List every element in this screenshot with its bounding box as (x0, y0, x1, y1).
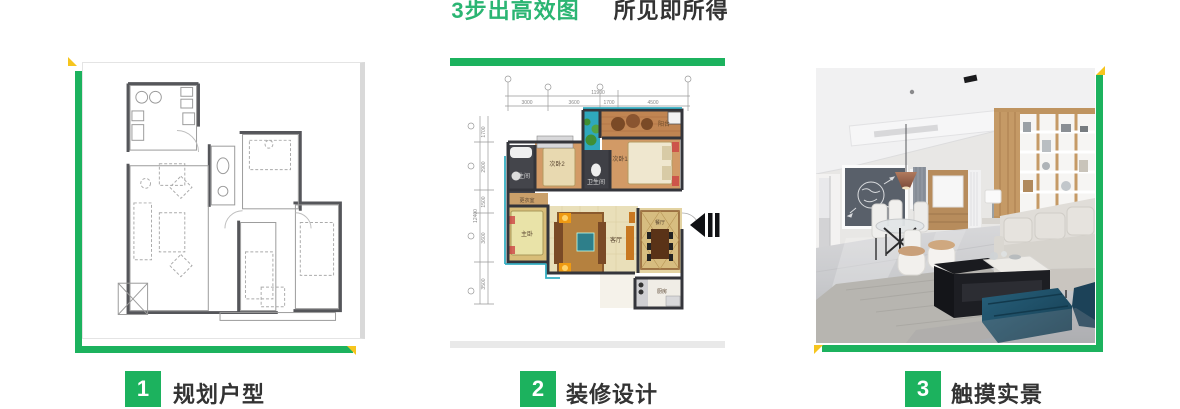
step-label-3: 触摸实景 (951, 377, 1043, 409)
panel2-green-frame-top (450, 58, 725, 66)
svg-text:次卧2: 次卧2 (549, 160, 565, 168)
step-label-2: 装修设计 (566, 377, 658, 409)
svg-text:更衣室: 更衣室 (519, 197, 534, 204)
colored-floorplan-image: 11900 3000 3600 1700 4500 12400 1700 290… (450, 66, 725, 341)
colored-floorplan-card: 11900 3000 3600 1700 4500 12400 1700 290… (450, 66, 725, 341)
svg-text:2900: 2900 (481, 161, 487, 172)
svg-text:厨房: 厨房 (657, 288, 667, 295)
step-number-3: 3 (917, 376, 929, 402)
step-number-2: 2 (532, 376, 544, 402)
page-title: 3步出高效图所见即所得 (0, 0, 1180, 25)
panel1-yellow-corner-top-left (68, 57, 77, 66)
step-label-1: 规划户型 (173, 377, 265, 409)
svg-text:3600: 3600 (568, 100, 579, 106)
panel3-yellow-corner-top-right (1096, 66, 1105, 75)
svg-text:3500: 3500 (481, 278, 487, 289)
svg-text:12400: 12400 (473, 209, 479, 223)
panel1-green-frame-left (75, 71, 82, 353)
svg-text:客厅: 客厅 (610, 236, 622, 244)
page-title-highlight: 3步出高效图 (451, 0, 579, 23)
svg-text:主卧: 主卧 (521, 230, 533, 238)
step-number-1: 1 (137, 376, 149, 402)
svg-text:1500: 1500 (481, 196, 487, 207)
rendered-room-image (816, 68, 1095, 343)
panel3-green-frame-bottom (822, 345, 1103, 352)
sketch-floorplan-image (83, 63, 360, 338)
panel3-green-frame-right (1096, 75, 1103, 352)
step-badge-3: 3 (905, 371, 941, 407)
page-title-rest: 所见即所得 (614, 0, 729, 23)
svg-text:餐厅: 餐厅 (655, 219, 665, 226)
svg-text:3600: 3600 (481, 232, 487, 243)
entrance-door-icon (682, 213, 720, 237)
panel1-green-frame-bottom (75, 346, 353, 353)
rendered-room-card (816, 68, 1095, 343)
svg-text:次卧1: 次卧1 (612, 155, 628, 163)
panel2-gray-frame-bottom (450, 341, 725, 348)
svg-text:11900: 11900 (591, 90, 605, 96)
svg-text:1700: 1700 (603, 100, 614, 106)
sketch-floorplan-card (82, 62, 365, 339)
svg-text:1700: 1700 (481, 126, 487, 137)
svg-text:3000: 3000 (521, 100, 532, 106)
step-badge-2: 2 (520, 371, 556, 407)
svg-text:卫生间: 卫生间 (587, 178, 605, 186)
svg-text:卫生间: 卫生间 (512, 172, 530, 180)
step-badge-1: 1 (125, 371, 161, 407)
svg-text:阳台: 阳台 (658, 120, 670, 128)
svg-text:4500: 4500 (647, 100, 658, 106)
